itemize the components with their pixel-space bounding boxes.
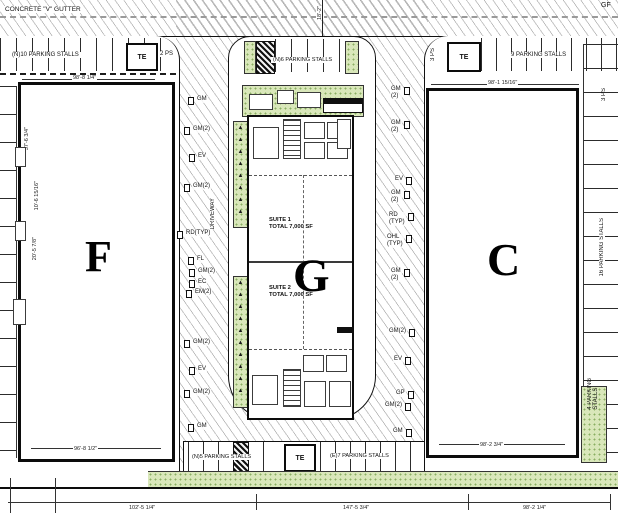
- utility-callout-label: GM(2): [192, 126, 211, 133]
- te-box-bottom: TE: [284, 444, 316, 472]
- f-wall-notch: [13, 299, 26, 325]
- stairs: [283, 119, 301, 159]
- street-band: [0, 0, 618, 37]
- building-g-letter: G: [293, 253, 330, 300]
- utility-callout-label: GM (2): [390, 190, 402, 204]
- street-centerline: [0, 16, 618, 18]
- te-label: TE: [460, 54, 469, 61]
- utility-callout-label: EV: [197, 366, 207, 373]
- te-box-top-left: TE: [126, 43, 158, 71]
- utility-marker-icon: [409, 329, 415, 337]
- utility-callout: EM(2): [186, 289, 212, 298]
- utility-callout: GM(2): [184, 339, 211, 348]
- parking-label-bottom-left: (N)5 PARKING STALLS: [190, 454, 253, 460]
- suite1-label: SUITE 1 TOTAL 7,000 SF: [269, 217, 313, 231]
- dim-tick: [468, 494, 469, 510]
- utility-callout: GM: [392, 428, 412, 437]
- utility-callout: GM(2): [184, 389, 211, 398]
- utility-callout: RD (TYP): [388, 212, 414, 226]
- landscape-corner-right: [345, 41, 359, 74]
- utility-marker-icon: [189, 280, 195, 288]
- utility-callout-label: OHL (TYP): [386, 234, 404, 248]
- f-wall-notch: [15, 147, 26, 167]
- utility-callout-label: GM(2): [384, 402, 403, 409]
- utility-callout-label: GM: [196, 96, 208, 103]
- parking-label-bottom-right: (E)7 PARKING STALLS: [328, 453, 391, 459]
- utility-callout: GM(2): [184, 126, 211, 135]
- gutter-label: CONCRETE "V" GUTTER: [3, 6, 83, 13]
- utility-callout-label: GM(2): [388, 328, 407, 335]
- landscape-strip-left-upper: ▲ ▲ ▲ ▲ ▲ ▲ ▲ ▲: [233, 121, 248, 228]
- te-box-top-right: TE: [447, 42, 481, 72]
- utility-marker-icon: [184, 340, 190, 348]
- bottom-dim-right: 98'-2 1/4": [522, 505, 547, 511]
- equipment-pad: [297, 92, 321, 108]
- utility-callout: FL: [188, 256, 205, 265]
- utility-callout-label: EV: [393, 356, 403, 363]
- utility-marker-icon: [405, 357, 411, 365]
- utility-marker-icon: [404, 87, 410, 95]
- c-top-dim: 98'-1 15/16": [487, 80, 518, 86]
- utility-callout: GM(2): [384, 402, 411, 411]
- utility-marker-icon: [189, 367, 195, 375]
- utility-marker-icon: [188, 424, 194, 432]
- parking-label-top-right: 9 PARKING STALLS: [509, 52, 568, 58]
- utility-callout-label: EM(2): [194, 289, 212, 296]
- site-plan: CONCRETE "V" GUTTER GF 18'-2" (N)10 PARK…: [0, 0, 618, 513]
- keynote-box: [323, 98, 363, 113]
- utility-marker-icon: [189, 269, 195, 277]
- utility-callout-label: GM(2): [192, 183, 211, 190]
- equipment-pad: [277, 90, 294, 104]
- desk-cluster: [304, 142, 325, 159]
- f-bottom-dim: 96'-8 1/2": [73, 446, 98, 452]
- building-c: C 98'-2 3/4": [426, 88, 579, 458]
- utility-marker-icon: [404, 191, 410, 199]
- utility-marker-icon: [189, 154, 195, 162]
- dim-tick: [610, 494, 611, 510]
- utility-marker-icon: [188, 97, 194, 105]
- landscape-corner-left: [244, 41, 256, 74]
- utility-callout: GM(2): [184, 183, 211, 192]
- utility-callout-label: GM (2): [390, 268, 402, 282]
- utility-callout-label: GP: [395, 390, 406, 397]
- utility-callout: EV: [393, 356, 411, 365]
- utility-callout-label: EV: [394, 176, 404, 183]
- utility-callout: GM(2): [388, 328, 415, 337]
- utility-callout: GM: [188, 423, 208, 432]
- bottom-dim-line: [8, 502, 610, 503]
- utility-callout: GM (2): [390, 190, 410, 204]
- restroom-block: [329, 381, 351, 407]
- f-top-dim: 98'-8 1/4": [72, 75, 97, 81]
- stairs: [283, 369, 301, 407]
- utility-marker-icon: [188, 257, 194, 265]
- parking-column-left-edge: [0, 86, 17, 458]
- utility-callout-label: FL: [196, 256, 205, 263]
- room-tag: [337, 327, 354, 333]
- dim-tick: [55, 478, 56, 513]
- two-ps-label: 2 PS: [158, 51, 175, 57]
- utility-marker-icon: [184, 390, 190, 398]
- keynote-box-header: [324, 99, 362, 104]
- te-label: TE: [296, 455, 305, 462]
- building-g: SUITE 1 TOTAL 7,000 SF SUITE 2 TOTAL 7,0…: [247, 115, 354, 420]
- utility-callout-label: RD (TYP): [388, 212, 406, 226]
- desk-cluster: [304, 122, 325, 139]
- office-lease-line-bottom: [249, 349, 352, 350]
- utility-marker-icon: [406, 235, 412, 243]
- utility-callout: EV: [394, 176, 412, 185]
- utility-callout-label: GM (2): [390, 86, 402, 100]
- parking-row-top-mid: [275, 39, 343, 72]
- parking-label-top-left: (N)10 PARKING STALLS: [10, 52, 81, 58]
- utility-callout: GM: [188, 96, 208, 105]
- utility-callout: OHL (TYP): [386, 234, 412, 248]
- office-lease-line-top: [249, 175, 352, 176]
- dim-tick: [10, 478, 11, 513]
- utility-marker-icon: [408, 391, 414, 399]
- desk-cluster: [326, 355, 347, 372]
- three-ps-left-label: 3 PS: [430, 48, 436, 61]
- utility-marker-icon: [184, 127, 190, 135]
- equipment-pad: [249, 94, 273, 110]
- utility-callout-label: GM (2): [390, 120, 402, 134]
- f-left-dim-2: 10'-6 15/16": [33, 181, 41, 210]
- conference-table: [253, 127, 279, 159]
- three-ps-right-label: 3 PS: [601, 88, 607, 101]
- restroom-block: [304, 381, 326, 407]
- building-c-letter: C: [487, 237, 520, 283]
- landscape-band-top: [242, 85, 364, 117]
- bottom-dim-left: 102'-5 1/4": [128, 505, 156, 511]
- f-left-dim-3: 20'-5 7/8": [31, 237, 39, 260]
- island-g: (N)6 PARKING STALLS ▲ ▲ ▲ ▲ ▲ ▲ ▲ ▲ ▲ ▲ …: [228, 36, 376, 420]
- utility-callout: GM (2): [390, 268, 410, 282]
- property-line: [0, 487, 618, 489]
- utility-callout-label: RD(TYP): [185, 230, 211, 237]
- utility-marker-icon: [404, 269, 410, 277]
- street-corner-label: GF: [601, 2, 611, 9]
- dim-tick: [256, 494, 257, 510]
- utility-marker-icon: [406, 177, 412, 185]
- utility-callout-label: GM(2): [192, 339, 211, 346]
- utility-callout-label: EV: [197, 153, 207, 160]
- utility-marker-icon: [184, 184, 190, 192]
- building-f-letter: F: [85, 235, 112, 279]
- utility-marker-icon: [404, 121, 410, 129]
- utility-callout: EC: [189, 279, 207, 288]
- utility-callout-label: EC: [197, 279, 207, 286]
- utility-callout-label: GM: [196, 423, 208, 430]
- utility-marker-icon: [408, 213, 414, 221]
- driveway-label: DRIVEWAY: [210, 198, 216, 229]
- four-stalls-label: 4 PARKING STALLS: [587, 378, 599, 410]
- c-bottom-dim: 98'-2 3/4": [479, 442, 504, 448]
- utility-callout-label: GM(2): [197, 268, 216, 275]
- restroom-block: [337, 119, 351, 149]
- utility-callout: EV: [189, 153, 207, 162]
- utility-callout: GM (2): [390, 120, 410, 134]
- zone-f: (N)10 PARKING STALLS TE 2 PS 98'-8 1/4" …: [0, 36, 180, 477]
- desk-cluster: [303, 355, 324, 372]
- utility-callout: GM(2): [189, 268, 216, 277]
- bottom-dim-mid: 147'-5 3/4": [342, 505, 370, 511]
- utility-marker-icon: [186, 290, 192, 298]
- utility-callout-label: GM(2): [192, 389, 211, 396]
- utility-callout: GM (2): [390, 86, 410, 100]
- utility-marker-icon: [177, 231, 183, 239]
- utility-marker-icon: [406, 429, 412, 437]
- f-wall-notch: [15, 221, 26, 241]
- te-label: TE: [138, 54, 147, 61]
- conference-table: [252, 375, 278, 405]
- sixteen-stalls-label: 16 PARKING STALLS: [599, 218, 605, 276]
- building-f: F 37'-6 3/4" 10'-6 15/16" 20'-5 7/8" 96'…: [18, 82, 175, 462]
- landscape-strip-left-lower: ▲ ▲ ▲ ▲ ▲ ▲ ▲ ▲ ▲ ▲: [233, 276, 248, 408]
- utility-marker-icon: [405, 403, 411, 411]
- parking-row-bottom: (N)5 PARKING STALLS TE (E)7 PARKING STAL…: [183, 441, 425, 473]
- zone-c: 3 PS TE 9 PARKING STALLS 98'-1 15/16" C …: [424, 36, 618, 477]
- utility-callout-label: GM: [392, 428, 404, 435]
- utility-callout: GP: [395, 390, 414, 399]
- utility-callout: RD(TYP): [177, 230, 211, 239]
- parking-label-top-mid: (N)6 PARKING STALLS: [271, 57, 334, 63]
- utility-callout: EV: [189, 366, 207, 375]
